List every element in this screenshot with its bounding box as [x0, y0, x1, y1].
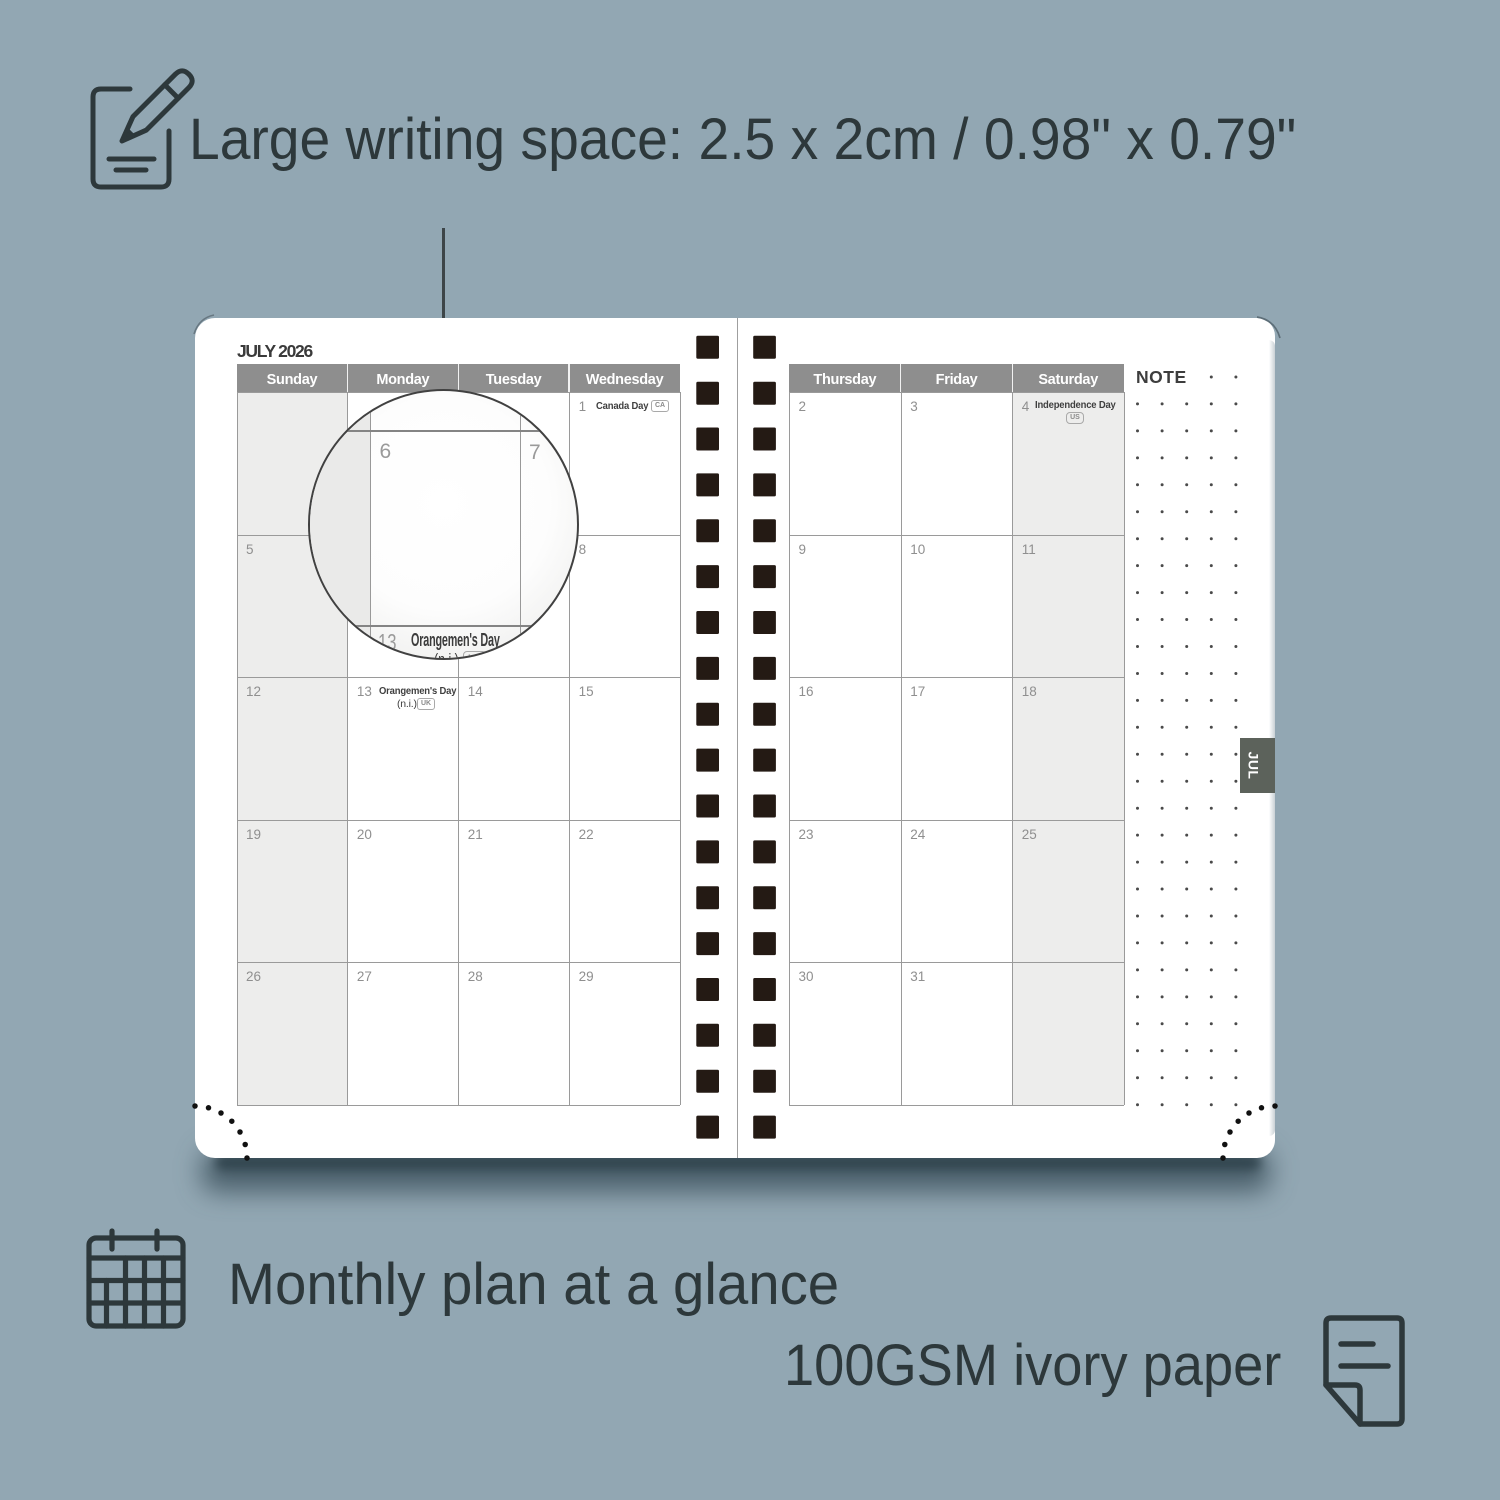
svg-text:JUL: JUL — [1246, 751, 1262, 779]
